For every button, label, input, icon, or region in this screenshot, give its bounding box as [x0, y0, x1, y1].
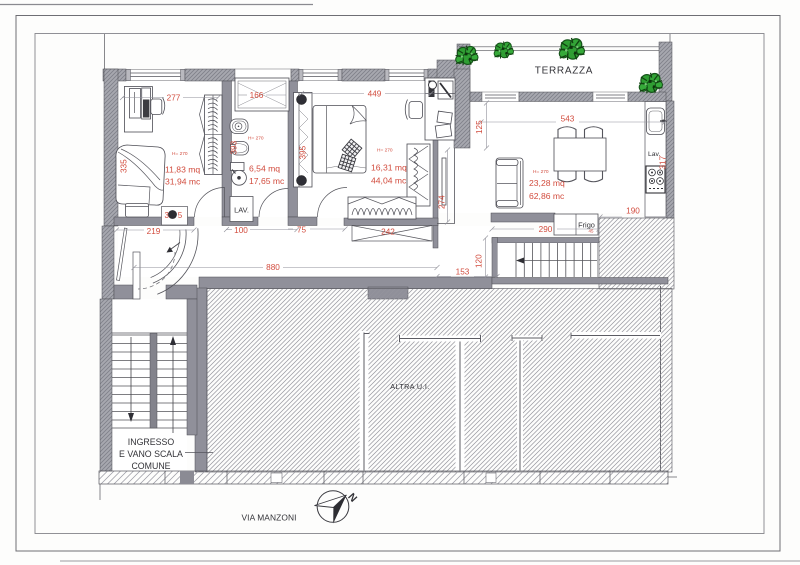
svg-text:274: 274: [438, 195, 447, 209]
svg-text:543: 543: [561, 115, 575, 124]
svg-text:277: 277: [167, 94, 181, 103]
svg-text:31,94 mc: 31,94 mc: [165, 177, 201, 187]
svg-text:23,28 mq: 23,28 mq: [529, 178, 565, 188]
svg-text:120: 120: [475, 254, 484, 268]
svg-text:H= 270: H= 270: [377, 148, 393, 154]
svg-text:125: 125: [475, 120, 484, 134]
svg-text:H= 270: H= 270: [533, 169, 549, 175]
svg-text:LAV.: LAV.: [234, 206, 249, 215]
svg-text:100: 100: [234, 226, 248, 235]
svg-text:153: 153: [456, 268, 470, 277]
svg-text:219: 219: [147, 227, 161, 236]
svg-text:6,54 mq: 6,54 mq: [249, 164, 280, 174]
svg-text:H= 270: H= 270: [248, 136, 264, 142]
svg-text:317: 317: [659, 155, 668, 169]
svg-text:880: 880: [266, 263, 280, 272]
svg-text:16,31 mq: 16,31 mq: [371, 163, 407, 173]
svg-text:44,04 mc: 44,04 mc: [371, 176, 407, 186]
svg-text:449: 449: [368, 90, 382, 99]
svg-text:INGRESSO: INGRESSO: [128, 437, 175, 447]
svg-text:5: 5: [178, 211, 183, 220]
svg-text:335: 335: [120, 159, 129, 173]
svg-text:395: 395: [299, 145, 308, 159]
svg-text:E VANO SCALA: E VANO SCALA: [119, 449, 183, 459]
svg-text:393: 393: [230, 140, 239, 154]
svg-text:62,86 mc: 62,86 mc: [529, 191, 565, 201]
svg-text:290: 290: [539, 225, 553, 234]
svg-text:ALTRA U.I.: ALTRA U.I.: [390, 382, 429, 391]
svg-text:COMUNE: COMUNE: [131, 461, 170, 471]
svg-text:11,83 mq: 11,83 mq: [165, 165, 200, 175]
svg-text:H= 270: H= 270: [172, 151, 188, 157]
svg-text:17,65 mc: 17,65 mc: [249, 176, 285, 186]
svg-text:75: 75: [297, 226, 307, 235]
svg-text:TERRAZZA: TERRAZZA: [535, 66, 593, 77]
svg-text:166: 166: [250, 91, 264, 100]
svg-text:190: 190: [626, 207, 640, 216]
svg-text:242: 242: [381, 228, 395, 237]
svg-text:VIA MANZONI: VIA MANZONI: [241, 513, 296, 523]
